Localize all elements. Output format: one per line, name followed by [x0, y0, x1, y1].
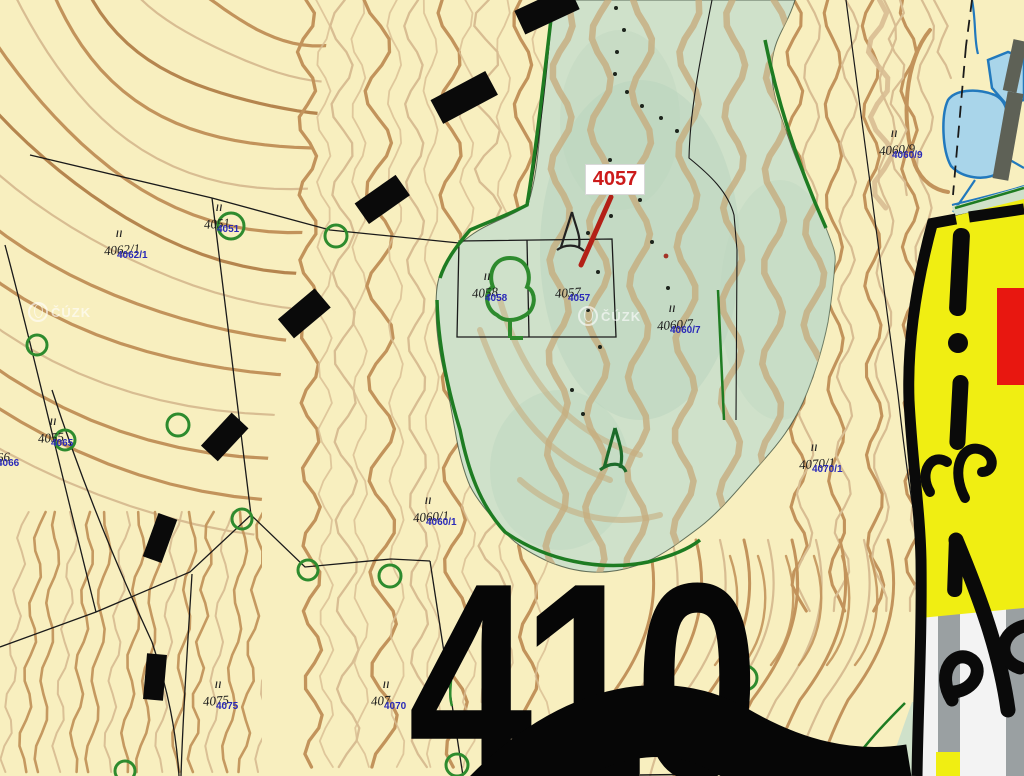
highlight-callout-4057[interactable]: 4057: [585, 164, 645, 195]
cuzk-watermark: ČÚZK: [578, 306, 641, 326]
yellow-patch: [936, 752, 960, 776]
red-marker-rect: [997, 288, 1024, 385]
cuzk-globe-icon: [578, 306, 598, 326]
cuzk-watermark: ČÚZK: [28, 302, 91, 322]
red-survey-dot: [664, 254, 669, 259]
cuzk-globe-icon: [28, 302, 48, 322]
map-artwork: [0, 0, 1024, 776]
callout-text: 4057: [593, 168, 638, 191]
cadastral-map-canvas[interactable]: ll40514051ll4062/14062/1ll40554065406640…: [0, 0, 1024, 776]
